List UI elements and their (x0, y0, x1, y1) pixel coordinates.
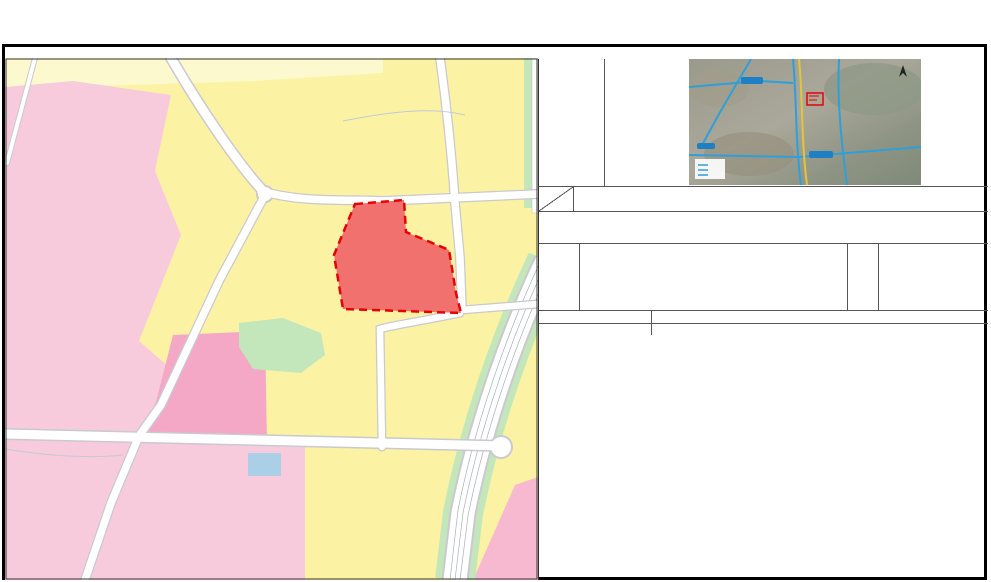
satellite-cell (605, 59, 988, 186)
footer-row-date (539, 323, 988, 335)
landuse-blue-parcel (248, 453, 281, 476)
footer-row-agency (539, 310, 988, 323)
notes-block (539, 211, 988, 243)
legend-swatch-column (580, 244, 679, 310)
legend-label (539, 244, 580, 310)
sheet-frame (2, 44, 987, 580)
legend-utility-column (772, 244, 847, 310)
table-header-row (539, 186, 988, 211)
image-row-label (539, 59, 605, 186)
plan-sheet-page (0, 0, 991, 582)
satellite-image (689, 59, 921, 185)
planning-map (5, 58, 538, 580)
image-row (539, 59, 988, 186)
satellite-legend-box (695, 159, 725, 179)
corner-header-cell (539, 187, 574, 211)
legend-facility-column (679, 244, 772, 310)
green-strip-topright (524, 58, 532, 208)
other-legend-empty-cell (879, 244, 988, 310)
agency-value (652, 311, 988, 323)
other-legend-label (847, 244, 879, 310)
agency-label (539, 311, 652, 323)
date-value (652, 324, 988, 335)
indicator-panel (538, 59, 988, 580)
legend-block (539, 243, 988, 310)
date-label (539, 324, 652, 335)
